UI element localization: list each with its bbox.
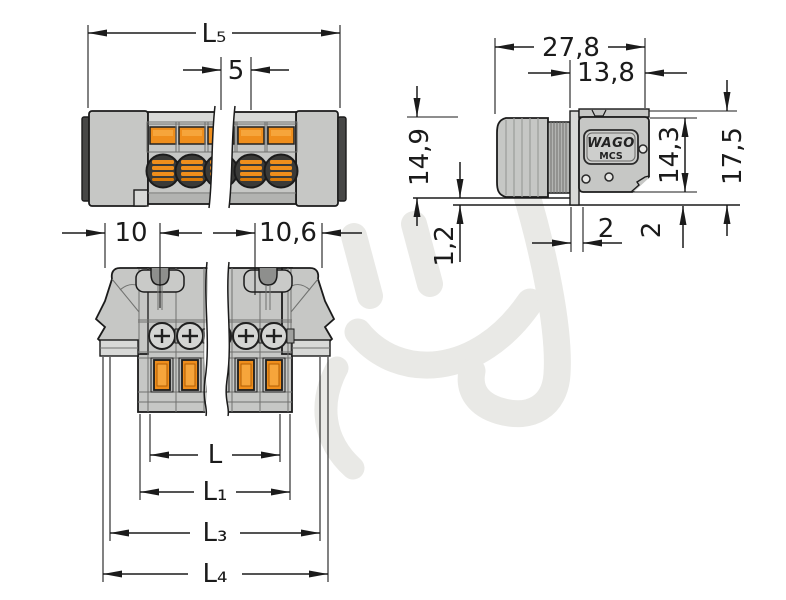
dim-pole-pitch: 5 <box>183 56 289 110</box>
dim-label-1-2: 1,2 <box>430 225 460 266</box>
left-cap-step <box>134 190 148 206</box>
dim-depth-header: 13,8 <box>528 58 687 108</box>
dim-label-l4: L₄ <box>203 559 228 589</box>
dim-height-total: 17,5 <box>718 80 748 236</box>
drawing-canvas: L₅ 5 <box>0 0 786 600</box>
dim-overall-length-l5: L₅ <box>88 19 340 108</box>
dim-label-10-6: 10,6 <box>259 218 317 248</box>
right-end-cap <box>296 111 338 206</box>
dim-label-10: 10 <box>114 218 147 248</box>
break-line-top-view <box>209 106 235 208</box>
top-view: L₅ 5 <box>82 19 346 208</box>
dim-label-17-5: 17,5 <box>718 127 748 185</box>
series-text: MCS <box>599 151 623 162</box>
side-view: WAGO MCS 27,8 13,8 14,9 <box>405 33 748 267</box>
brand-text: WAGO <box>587 136 635 151</box>
screw-dot <box>639 145 647 153</box>
dim-length-l: L <box>150 414 280 470</box>
dim-label-l3: L₃ <box>203 518 228 548</box>
latch-strip <box>579 109 649 117</box>
dim-label-2v: 2 <box>637 222 667 239</box>
dim-label-14-3: 14,3 <box>655 126 685 184</box>
screw-dot <box>582 175 590 183</box>
right-end-edge <box>338 117 346 201</box>
dim-label-l1: L₁ <box>203 477 228 507</box>
dim-label-l5: L₅ <box>202 19 227 49</box>
dim-height-front: 14,9 <box>405 86 458 226</box>
screw-dot <box>605 173 613 181</box>
dim-panel-thickness-vertical: 2 <box>637 206 683 248</box>
dim-label-l: L <box>208 440 223 470</box>
dim-label-pitch: 5 <box>228 56 245 86</box>
dim-label-13-8: 13,8 <box>577 58 635 88</box>
dim-label-14-9: 14,9 <box>405 128 435 186</box>
wago-logo: WAGO MCS <box>584 130 638 164</box>
flange-plate <box>570 111 579 205</box>
dim-label-2h: 2 <box>598 214 615 244</box>
break-line-front-view <box>204 262 229 416</box>
